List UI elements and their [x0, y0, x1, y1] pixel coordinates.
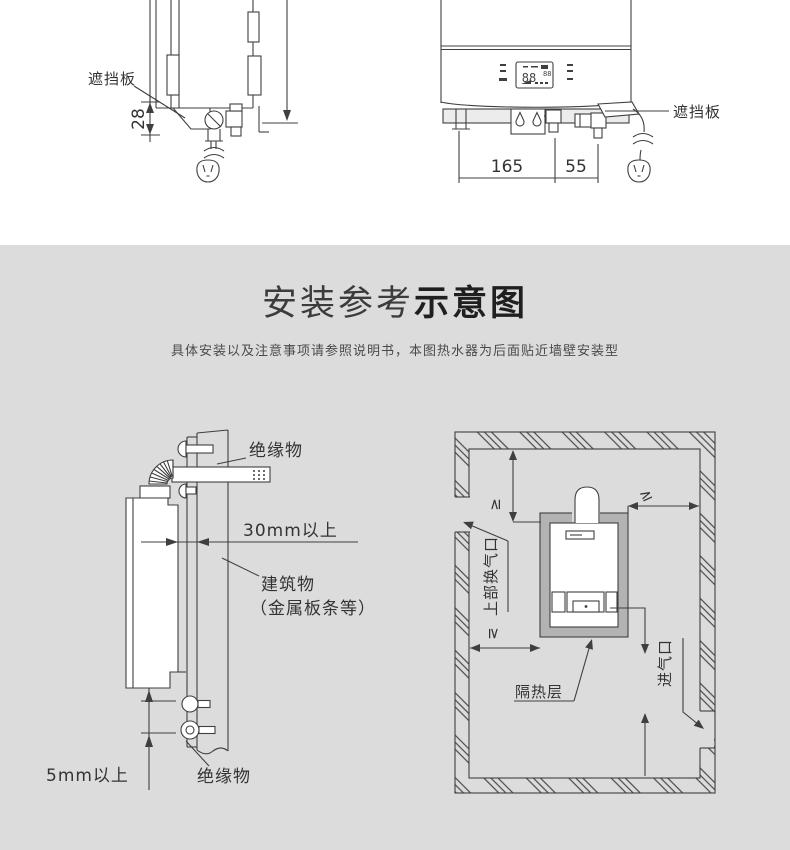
clearance-5mm-label: 5mm以上 [46, 766, 129, 786]
building-label: 建筑物 [261, 575, 315, 595]
room-layout-diagram: ≥ ≥ ≥ [451, 432, 715, 793]
display-sub-value: 88 [543, 70, 551, 78]
power-plug-left [197, 160, 219, 182]
shield-plate-label-left: 遮挡板 [88, 70, 136, 88]
side-bracket [167, 55, 179, 95]
heater-body-side [126, 498, 178, 688]
dimension-top-clearance: ≥ [486, 450, 541, 522]
heat-insulation-label: 隔热层 [515, 683, 563, 701]
dim-165-label: 165 [491, 157, 523, 177]
heater-front-view-drawing: 88 88 [441, 0, 721, 183]
shield-plate-side [173, 108, 210, 129]
dimension-5mm: 5mm以上 [46, 688, 176, 790]
dimension-28: 28 [129, 95, 160, 142]
top-drawings-section: 28 遮挡板 88 88 [0, 0, 790, 245]
heater-side-view-drawing: 28 遮挡板 [88, 0, 298, 182]
gte-top-label: ≥ [486, 497, 504, 511]
clearance-30mm-label: 30mm以上 [243, 521, 338, 541]
product-installation-sheet: 28 遮挡板 88 88 [0, 0, 790, 850]
side-port-upper [248, 12, 259, 42]
shield-plate-label-right: 遮挡板 [673, 103, 721, 121]
gte-right-label: ≥ [636, 484, 656, 506]
duct-insulation-dots [253, 470, 265, 480]
building-note-label: （金属板条等） [250, 599, 376, 619]
dimension-right-clearance: ≥ [628, 484, 699, 514]
insulation-top-label: 绝缘物 [249, 441, 303, 461]
cord-break-symbol [204, 148, 224, 159]
gas-valve [546, 110, 561, 123]
power-plug-right [628, 160, 650, 182]
cord-break-symbol [633, 134, 653, 145]
insulation-channel [540, 487, 628, 637]
control-panel-display: 88 88 [499, 62, 573, 88]
air-inlet-opening [697, 711, 714, 748]
air-inlet-label: 进气口 [656, 639, 674, 687]
dimension-165-55: 165 55 [459, 131, 598, 183]
insulation-bottom-label: 绝缘物 [197, 767, 251, 787]
page-subtitle: 具体安装以及注意事项请参照说明书，本图热水器为后面贴近墙壁安装型 [0, 340, 790, 359]
page-title: 安装参考示意图 [0, 275, 790, 326]
corrugated-elbow [149, 460, 173, 484]
dim-arrow-down [283, 110, 291, 121]
title-regular: 安装参考 [262, 284, 414, 323]
flue-pipe [575, 487, 599, 523]
title-bold: 示意图 [414, 284, 528, 323]
gte-left-label: ≥ [485, 627, 503, 641]
dimension-left-clearance: ≥ [470, 627, 540, 652]
dim-55-label: 55 [565, 157, 587, 177]
exhaust-duct [140, 460, 270, 498]
side-port-lower [248, 56, 261, 95]
dim-28-label: 28 [129, 108, 149, 130]
upper-vent-label: 上部换气口 [482, 536, 500, 616]
clearance-side-diagram: 30mm以上 建筑物 （金属板条等） 绝缘物 5mm以上 绝缘物 [46, 430, 376, 790]
